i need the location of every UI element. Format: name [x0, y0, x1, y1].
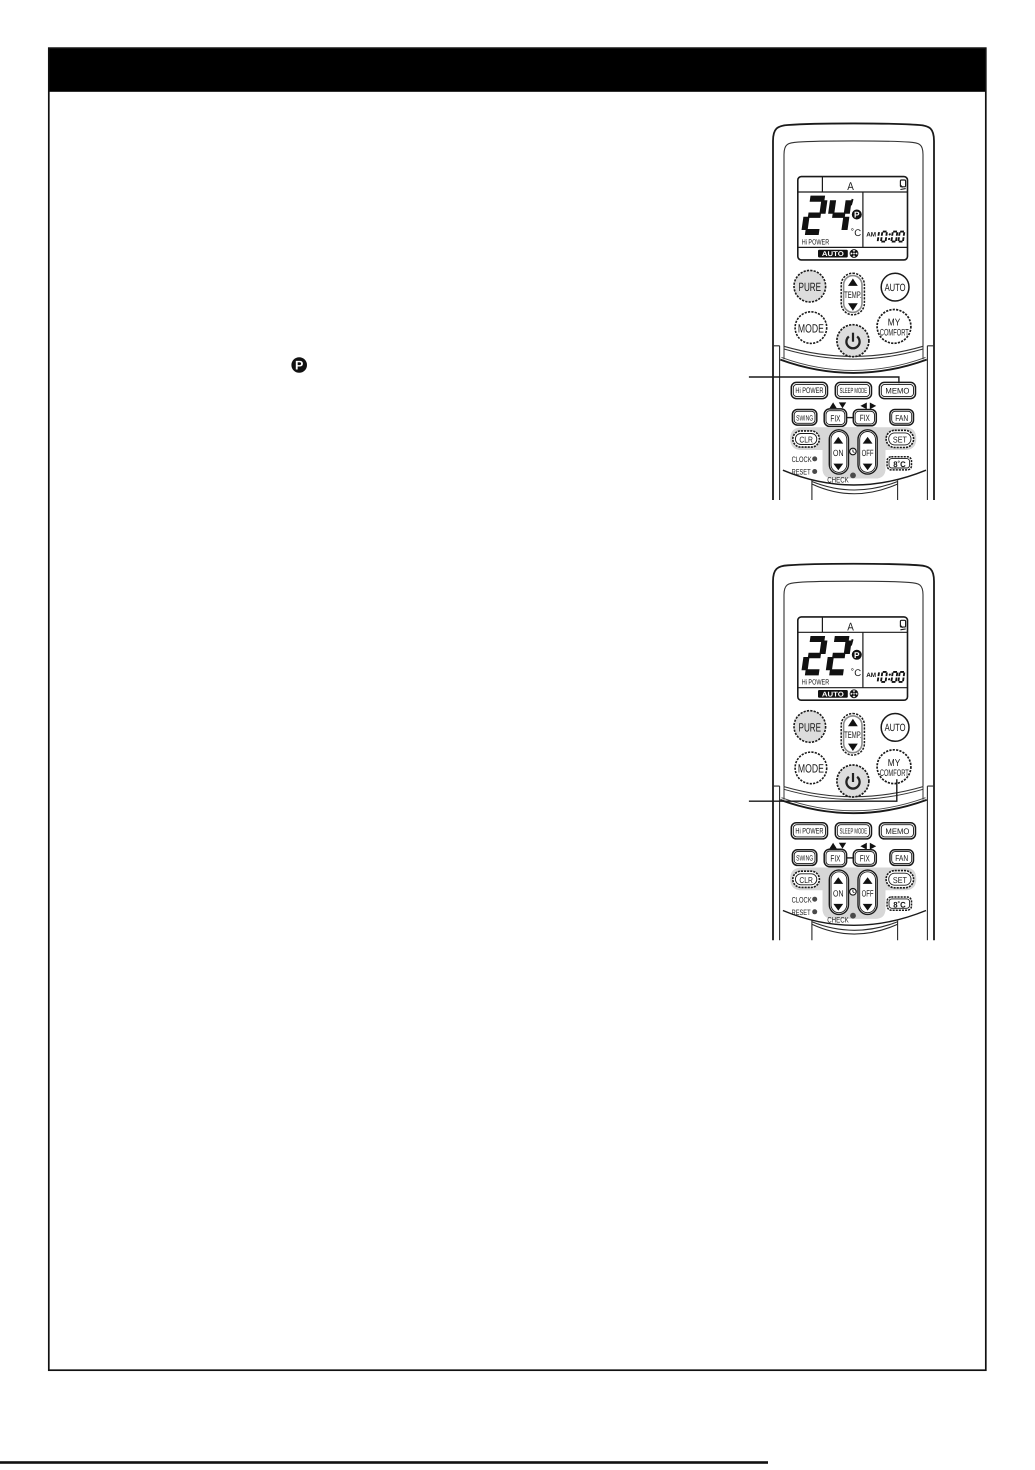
- svg-text:P: P: [295, 359, 303, 373]
